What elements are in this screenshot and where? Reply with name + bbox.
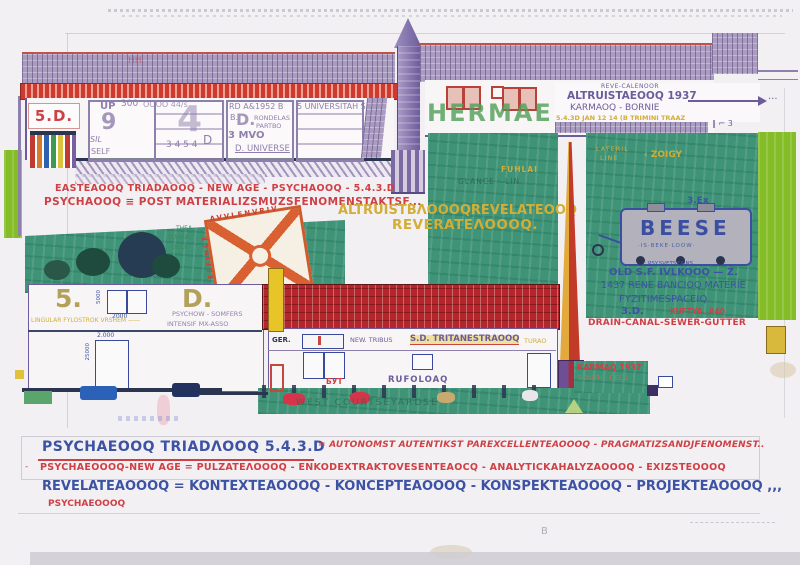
- graffiti-3454: 3 4 5 4: [166, 141, 198, 150]
- tritanestra-label: S.D. TRITANESTRAOOQ: [410, 335, 519, 345]
- right-building-roof-raised: [712, 33, 758, 74]
- zoigy-label: ‹ ZOIGY: [644, 151, 682, 160]
- hermaen-graffiti: HERMAEN: [427, 101, 575, 125]
- color-stripe-display: [30, 131, 76, 168]
- graffiti-rondelas: RONDELAS: [254, 115, 290, 122]
- beese-wagon-subtext: ·IS·BEKE·LOOW·: [638, 244, 695, 250]
- stray-mark: B: [541, 527, 548, 537]
- pencil-scribble-row2: [122, 15, 782, 17]
- label-3d: 3.D.: [621, 307, 644, 317]
- new-tribus-label: NEW. TRIBUS: [350, 337, 393, 344]
- graffiti-universitah: 5 UNIVERSITAH S: [297, 103, 366, 111]
- rufoloaq-label: RUFOLOAQ: [388, 376, 448, 385]
- karmaq-1937-label: KARMAQ 1937: [577, 364, 642, 372]
- purple-square-mark: [647, 385, 658, 396]
- beese-wagon-label: BEESE: [640, 218, 731, 238]
- trimini-date-line: 5.4.3D JAN 12 14 (B TRIMINI TRAAZ: [556, 115, 685, 122]
- ground-line-2: [200, 392, 268, 395]
- drain-canal-label: DRAIN-CANAL-SEWER-GUTTER: [588, 319, 746, 328]
- sign-side-marks: ‖ ⌐ 3: [712, 120, 733, 128]
- karmaoq-bornie: KARMAOQ - BORNIE: [570, 104, 659, 113]
- caption-line3-red: PSYCHAEOOOQ: [48, 500, 125, 509]
- left-building-five: 5.: [55, 286, 82, 311]
- pencil-scribble-row1: [108, 9, 793, 12]
- hedge-note-thea: THEA: [176, 226, 192, 232]
- long-building-window1: [303, 352, 345, 379]
- south-celo-label: SOUTH - ČELO: [578, 375, 628, 382]
- graffiti-big4: 4: [177, 102, 202, 138]
- caption-line1-underline: [38, 459, 314, 461]
- long-building-sign-line: [268, 350, 556, 351]
- long-building-roof: [262, 284, 560, 330]
- lingular-note: LINGULAR FYLOSTROK VRSHEM ——: [31, 318, 140, 324]
- caption-pencil-line: [18, 513, 760, 514]
- roof-line-extension1: [758, 70, 798, 72]
- beese-wheel-3: [716, 256, 725, 265]
- graffiti-nine: 9: [101, 112, 116, 134]
- right-lime-strip: [758, 132, 796, 320]
- dim-5000: 5000: [97, 290, 103, 304]
- graffiti-300: 300: [121, 100, 138, 109]
- paper-stain-2: [770, 362, 796, 378]
- beese-hitch-ring: [592, 244, 604, 256]
- intensif-note: INTENSIF MX-ASSO: [167, 321, 228, 328]
- altruist-revelate-line: ALTRUISTBΛOOOQREVELATEOOQ: [338, 204, 577, 217]
- hedge-bush-2: [76, 248, 110, 276]
- curb-navy-blob: [172, 383, 200, 397]
- blue-scribble: [118, 416, 180, 421]
- direction-arrow-head: [758, 96, 767, 106]
- pencil-line-top: [65, 33, 785, 34]
- caption-line2-red: PSYCHAEOOOQ-NEW AGE = PULZATEΛOOOQ - ENK…: [40, 463, 726, 473]
- beese-wheel-1: [636, 256, 645, 265]
- scan-shadow-bottom: [30, 552, 800, 565]
- window1-divider: [323, 353, 325, 378]
- graffiti-d-mid: D.: [236, 112, 255, 128]
- grass-triangle-mark: [565, 399, 583, 413]
- east-triad-line: EASTEAOOQ TRIADAOOQ - NEW AGE - PSYCHAOO…: [55, 184, 395, 194]
- kuftya-label: KUFTYA. #40: [670, 308, 725, 316]
- left-building-doorway: [95, 340, 129, 390]
- left-building-dee: D.: [182, 286, 212, 311]
- left-building-window: [107, 290, 147, 314]
- left-building-divider: [28, 330, 262, 332]
- shop-sign-5d-label: 5.D.: [35, 107, 73, 125]
- right-building-roof: [420, 43, 714, 82]
- storefront-roof-graffiti: HH: [128, 57, 142, 66]
- arrow-trailing-dots: ...: [768, 92, 778, 102]
- beese-wagon-vent1: [647, 203, 665, 212]
- roof-line-extension2: [758, 79, 798, 80]
- caption-line1-red: = AUTONOMST AUTENTIKST PAREXCELLENTEAOOO…: [318, 441, 765, 450]
- caption-line1-blue: PSYCHAEOOQ TRIADΛOOQ 5.4.3.D: [42, 440, 325, 454]
- reverate-line: REVERATEΛOOOQ.: [392, 219, 538, 233]
- long-building-window2: [412, 354, 433, 370]
- spike-chimney: [560, 142, 580, 364]
- graffiti-self: SELF: [91, 148, 110, 156]
- hedge-bush-1: [44, 260, 70, 280]
- curb-blue-blob: [80, 386, 117, 400]
- turao-label: TURAO: [524, 338, 546, 345]
- west-courtyard-label: WEST COURTSEYARDSE: [296, 399, 439, 408]
- dim-2000b: 2.000: [97, 333, 114, 339]
- ger-label: GER.: [272, 337, 291, 344]
- yellow-marker-square: [766, 326, 786, 354]
- hedge-note-beck: BECK: [172, 245, 188, 251]
- storefront-roof: [22, 52, 395, 85]
- graffiti-sil: SIL: [90, 136, 102, 144]
- graffiti-d-small: D: [203, 134, 212, 146]
- caption-line3-blue: REVELATEAOOOQ = KONTEXTEAOOOQ - KONCEPTE…: [42, 480, 782, 493]
- altruista-headline: ALTRUISTAEOOQ 1937: [567, 91, 697, 102]
- hedge-note-sunral: SUNRAL: [168, 235, 192, 241]
- shop-sign-5d: 5.D.: [28, 103, 80, 129]
- grass-tan-blob: [437, 392, 455, 403]
- graffiti-universe: D. UNIVERSE: [235, 145, 290, 154]
- glance-lin-label: GLANCE · LIN: [458, 178, 520, 186]
- pencil-dash-line: [690, 522, 775, 523]
- dim-25000: 25000: [86, 343, 92, 361]
- lateril-label: LATERIL: [596, 146, 629, 153]
- sign-band-box: [302, 334, 344, 349]
- rene-line: 1437 RENE BANCIOQ MATERIE: [601, 281, 746, 291]
- curb-green-blob: [24, 391, 52, 404]
- graffiti-partbo: PARTBO: [256, 123, 281, 130]
- caption-line2-dash: -: [25, 463, 28, 472]
- fuhlai-label: FUHLAI: [501, 166, 538, 174]
- old-sf-line: OLD S.F. IVLKOOQ — Z.: [609, 268, 738, 278]
- yellow-tick: [15, 370, 24, 379]
- tower-base: [391, 150, 425, 194]
- tower-shaft: [397, 46, 420, 152]
- left-window-divider: [126, 291, 128, 313]
- fence-posts: [262, 385, 556, 398]
- fyziti-line: FYZITIMESPACEIQ: [619, 295, 707, 305]
- yellow-pole: [268, 268, 284, 332]
- sign-band-box-tick: [318, 336, 321, 345]
- beese-wagon-vent2: [697, 203, 715, 212]
- direction-arrow: [688, 100, 760, 102]
- left-wall-edge: [18, 96, 21, 236]
- grass-white-blob: [522, 390, 538, 401]
- artwork-canvas: HH 5.D. UP 300 OOOO 44/s 9 SIL SELF 4 3 …: [0, 0, 800, 565]
- psychow-note: PSYCHOW - SOMFERS: [172, 311, 242, 318]
- lateril-line-label: LINE: [600, 155, 619, 162]
- white-box-mark: [658, 376, 673, 388]
- graffiti-mvo: 3 MVO: [228, 131, 264, 141]
- sign-wall-hatch-band: [555, 122, 708, 133]
- hedge-bush-4: [152, 254, 180, 278]
- long-building-door: [527, 353, 551, 388]
